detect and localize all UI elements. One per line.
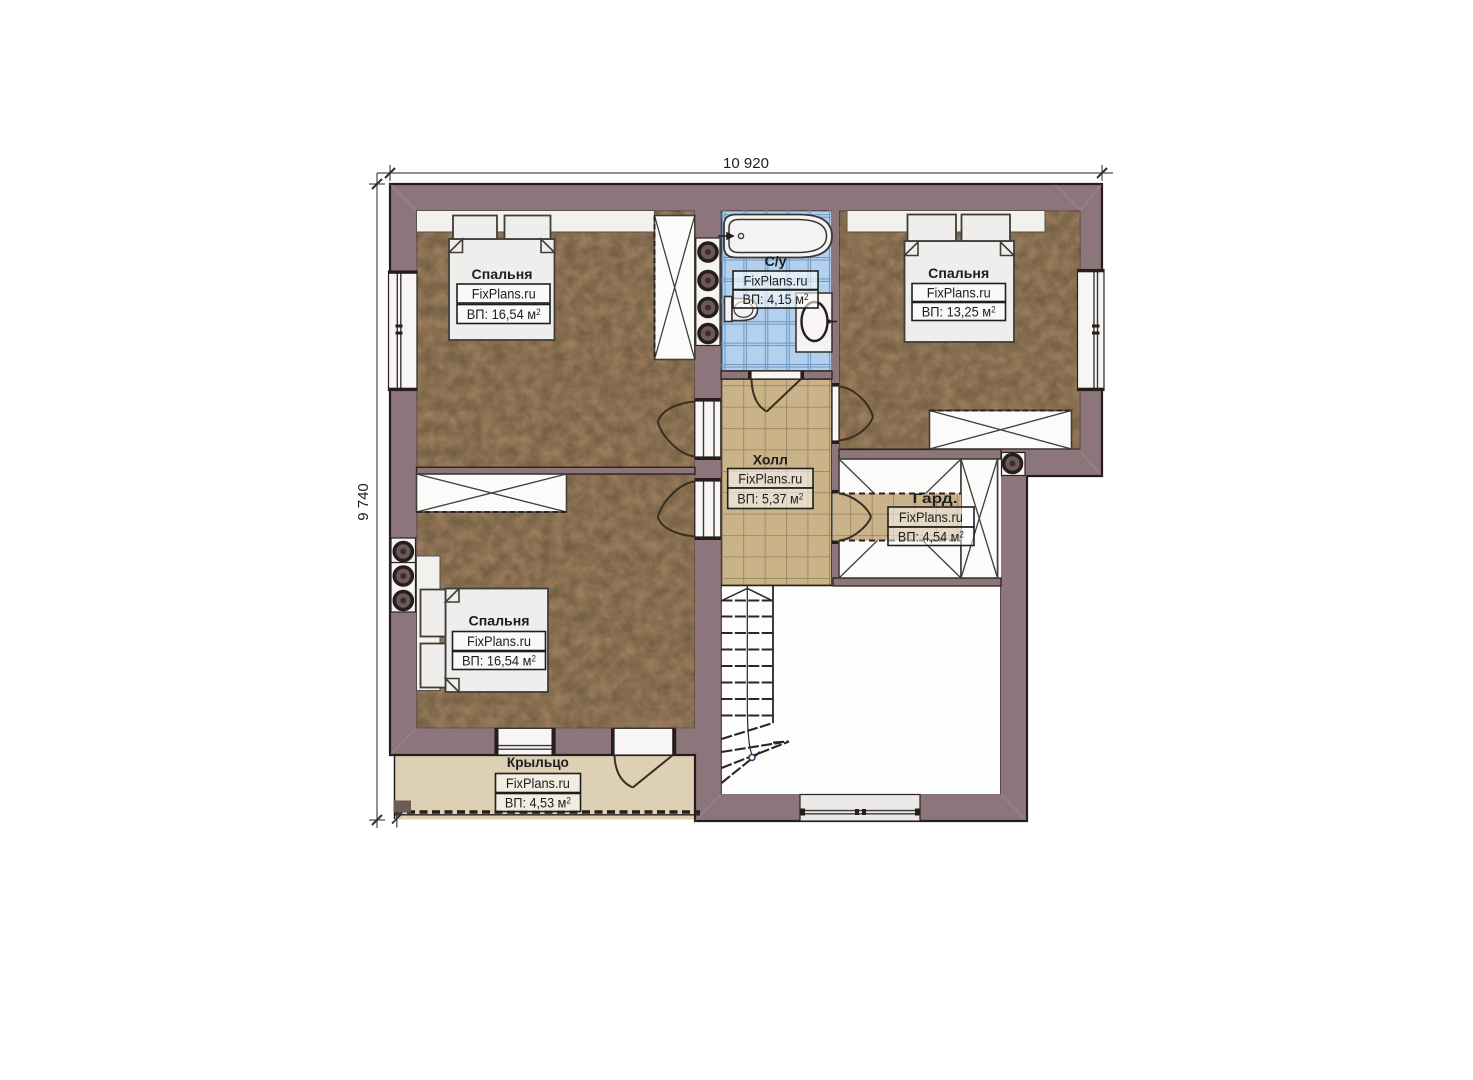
svg-text:Холл: Холл <box>753 452 788 468</box>
svg-text:Крыльцо: Крыльцо <box>507 754 569 770</box>
svg-text:FixPlans.ru: FixPlans.ru <box>472 286 536 302</box>
svg-text:ВП: 16,54 м2: ВП: 16,54 м2 <box>467 306 541 322</box>
svg-text:ВП: 16,54 м2: ВП: 16,54 м2 <box>462 653 536 669</box>
svg-text:FixPlans.ru: FixPlans.ru <box>899 509 963 525</box>
svg-text:ВП: 4,54 м2: ВП: 4,54 м2 <box>898 529 964 545</box>
svg-text:FixPlans.ru: FixPlans.ru <box>467 633 531 649</box>
svg-text:ВП: 13,25 м2: ВП: 13,25 м2 <box>922 304 996 320</box>
svg-text:ВП: 4,53 м2: ВП: 4,53 м2 <box>505 795 571 811</box>
svg-text:С/у: С/у <box>765 253 787 269</box>
svg-text:ВП: 4,15 м2: ВП: 4,15 м2 <box>743 291 809 307</box>
svg-text:FixPlans.ru: FixPlans.ru <box>738 471 802 487</box>
svg-text:10 920: 10 920 <box>723 155 769 172</box>
svg-text:ВП: 5,37 м2: ВП: 5,37 м2 <box>737 491 803 507</box>
svg-text:Гард.: Гард. <box>913 490 958 506</box>
svg-text:FixPlans.ru: FixPlans.ru <box>506 775 570 791</box>
svg-text:9 740: 9 740 <box>355 483 372 521</box>
svg-text:FixPlans.ru: FixPlans.ru <box>927 285 991 301</box>
svg-text:FixPlans.ru: FixPlans.ru <box>744 273 808 289</box>
svg-text:Спальня: Спальня <box>928 265 989 281</box>
svg-text:Спальня: Спальня <box>472 266 533 282</box>
svg-text:Спальня: Спальня <box>469 613 530 629</box>
